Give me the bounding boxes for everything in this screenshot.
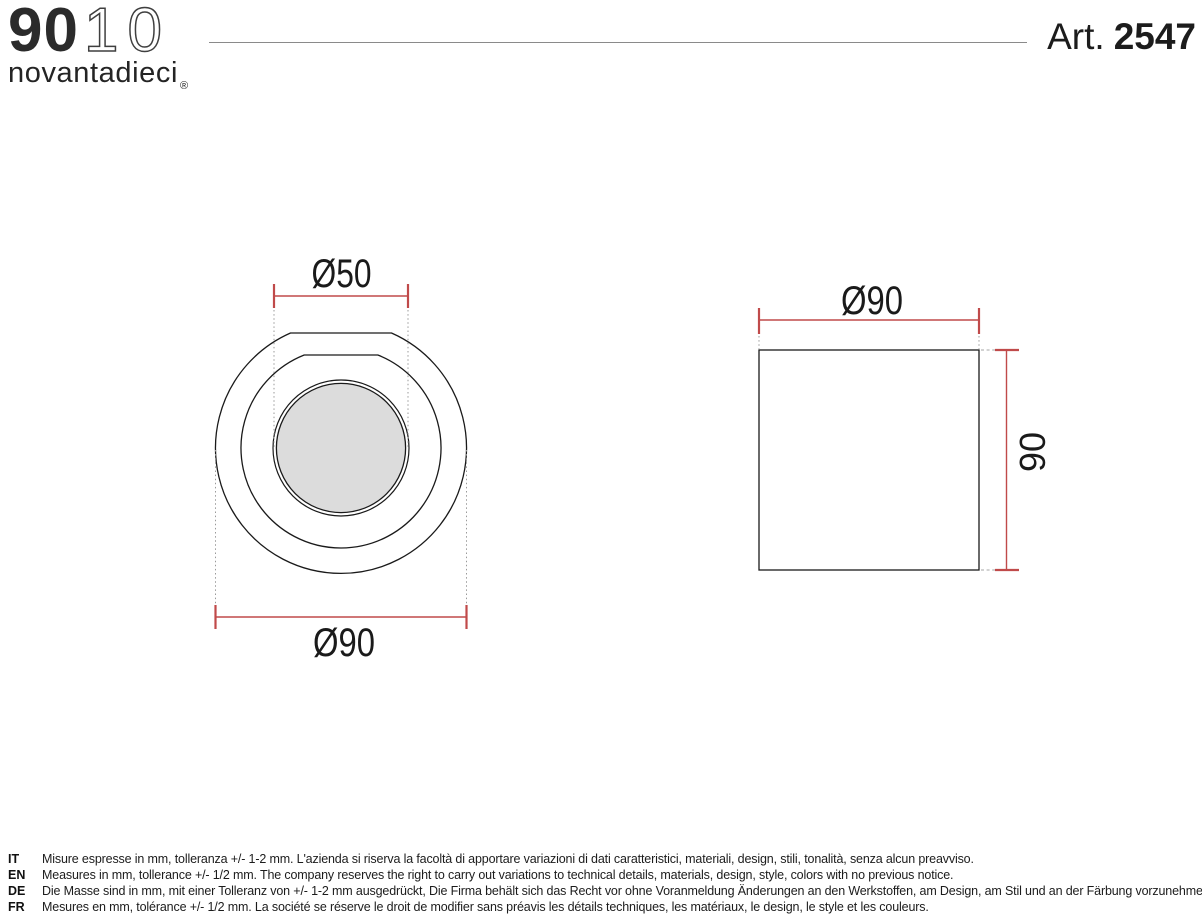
note-text: Misure espresse in mm, tolleranza +/- 1-… (42, 851, 974, 867)
note-row-en: EN Measures in mm, tollerance +/- 1/2 mm… (8, 867, 1198, 883)
note-text: Mesures en mm, tolérance +/- 1/2 mm. La … (42, 899, 929, 915)
note-lang-label: EN (8, 867, 42, 883)
note-text: Measures in mm, tollerance +/- 1/2 mm. T… (42, 867, 953, 883)
top-view: Ø50 Ø90 (215, 252, 466, 665)
dimension-side-height: 90 (981, 350, 1053, 570)
note-row-it: IT Misure espresse in mm, tolleranza +/-… (8, 851, 1198, 867)
note-text: Die Masse sind in mm, mit einer Tolleran… (42, 883, 1202, 899)
side-view: Ø90 90 (759, 279, 1053, 570)
dimension-label-side-height: 90 (1012, 432, 1053, 472)
lens-diffuser (276, 383, 405, 512)
dimension-side-width: Ø90 (759, 279, 979, 349)
dimension-label-inner-diameter: Ø50 (312, 252, 372, 296)
note-row-de: DE Die Masse sind in mm, mit einer Tolle… (8, 883, 1198, 899)
dimension-label-outer-diameter: Ø90 (313, 621, 375, 665)
note-lang-label: FR (8, 899, 42, 915)
note-lang-label: DE (8, 883, 42, 899)
note-lang-label: IT (8, 851, 42, 867)
footer-notes: IT Misure espresse in mm, tolleranza +/-… (8, 851, 1198, 915)
note-row-fr: FR Mesures en mm, tolérance +/- 1/2 mm. … (8, 899, 1198, 915)
dimension-label-side-width: Ø90 (841, 279, 903, 323)
datasheet-page: { "header": { "logo": { "bold": "90", "l… (0, 0, 1202, 922)
technical-drawing: Ø50 Ø90 Ø90 90 (0, 0, 1202, 922)
cylinder-side-face (759, 350, 979, 570)
